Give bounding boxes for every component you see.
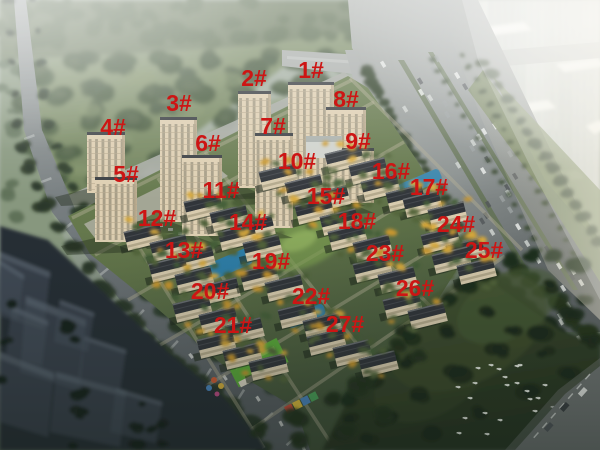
svg-text:9#: 9# xyxy=(345,128,371,154)
svg-text:24#: 24# xyxy=(437,211,476,237)
svg-text:4#: 4# xyxy=(100,114,126,140)
svg-text:12#: 12# xyxy=(138,205,177,231)
svg-text:20#: 20# xyxy=(191,278,230,304)
svg-text:11#: 11# xyxy=(202,177,239,203)
svg-text:15#: 15# xyxy=(307,183,346,209)
svg-text:19#: 19# xyxy=(252,248,291,274)
svg-text:14#: 14# xyxy=(229,209,268,235)
svg-text:18#: 18# xyxy=(338,208,377,234)
svg-text:7#: 7# xyxy=(260,113,286,139)
svg-text:23#: 23# xyxy=(366,240,405,266)
svg-text:2#: 2# xyxy=(241,65,267,91)
svg-text:8#: 8# xyxy=(333,86,359,112)
svg-text:10#: 10# xyxy=(278,148,317,174)
svg-text:22#: 22# xyxy=(292,283,331,309)
svg-text:25#: 25# xyxy=(465,237,504,263)
svg-text:16#: 16# xyxy=(372,158,411,184)
svg-text:6#: 6# xyxy=(195,130,221,156)
svg-text:27#: 27# xyxy=(326,311,365,337)
svg-text:13#: 13# xyxy=(165,237,204,263)
svg-text:5#: 5# xyxy=(113,161,139,187)
svg-text:17#: 17# xyxy=(410,174,449,200)
svg-text:26#: 26# xyxy=(396,275,435,301)
svg-text:3#: 3# xyxy=(166,90,192,116)
svg-text:1#: 1# xyxy=(298,57,324,83)
svg-text:21#: 21# xyxy=(214,312,253,338)
